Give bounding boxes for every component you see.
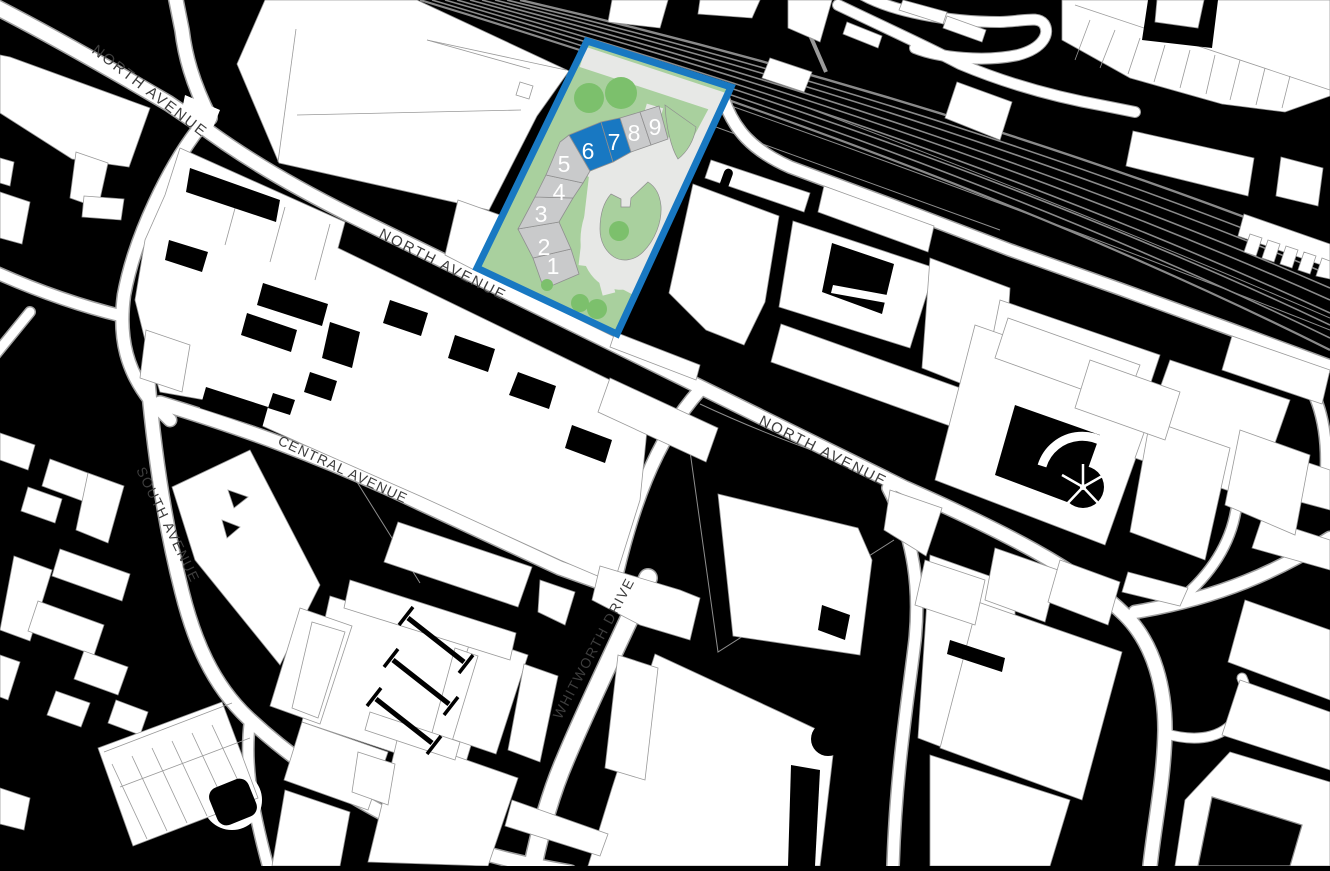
svg-text:3: 3 bbox=[535, 201, 548, 227]
svg-text:8: 8 bbox=[628, 120, 641, 146]
svg-text:2: 2 bbox=[538, 234, 551, 260]
svg-text:9: 9 bbox=[649, 114, 662, 140]
svg-text:6: 6 bbox=[582, 138, 595, 164]
svg-text:4: 4 bbox=[553, 179, 566, 205]
svg-text:5: 5 bbox=[558, 151, 571, 177]
svg-text:7: 7 bbox=[608, 129, 621, 155]
